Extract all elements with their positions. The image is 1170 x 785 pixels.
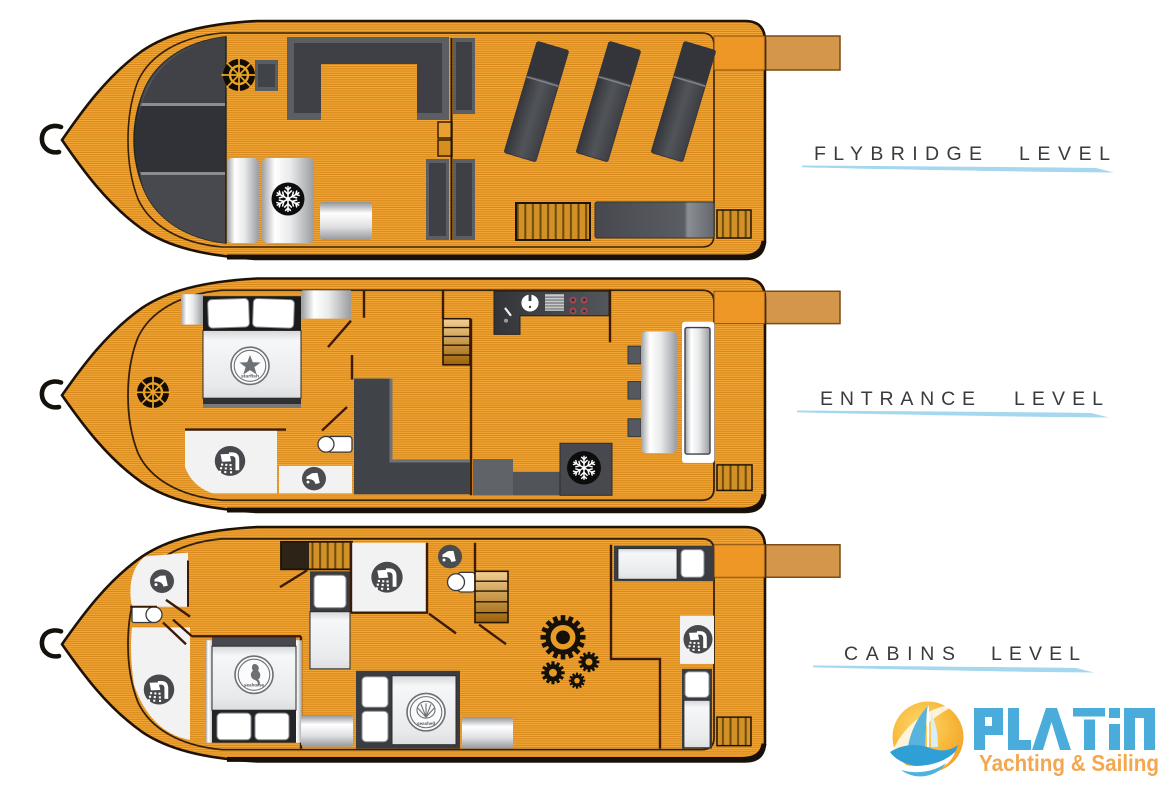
svg-text:Yachting & Sailing: Yachting & Sailing: [979, 750, 1159, 776]
svg-text:seashell: seashell: [417, 721, 435, 726]
svg-text:LEVEL: LEVEL: [1019, 143, 1118, 165]
svg-text:FLYBRIDGE: FLYBRIDGE: [814, 143, 990, 165]
svg-text:CABINS: CABINS: [844, 643, 963, 665]
svg-text:LEVEL: LEVEL: [1014, 388, 1111, 410]
svg-text:starfish: starfish: [241, 374, 259, 380]
svg-text:seahorse: seahorse: [244, 683, 265, 688]
svg-text:LEVEL: LEVEL: [991, 643, 1088, 665]
svg-text:ENTRANCE: ENTRANCE: [820, 388, 983, 410]
